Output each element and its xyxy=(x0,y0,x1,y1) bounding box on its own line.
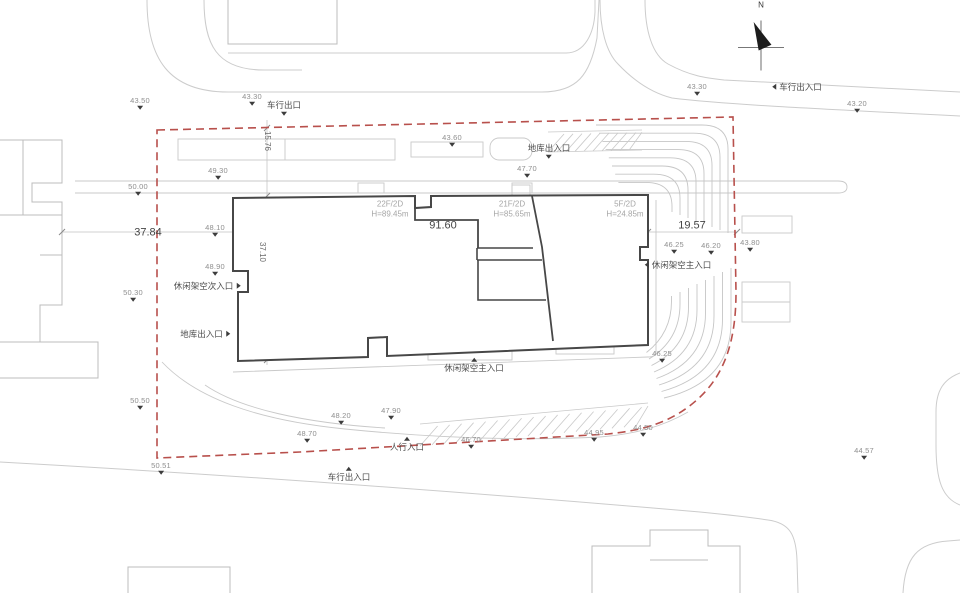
entrance-arrow-icon xyxy=(546,154,552,158)
dimension-label: 19.57 xyxy=(678,221,706,232)
north-label: N xyxy=(758,2,764,10)
building-floors: 5F/2D xyxy=(606,200,643,210)
entrance-arrow-icon xyxy=(645,262,649,268)
entrance-text: 车行出入口 xyxy=(779,83,822,92)
dimension-label: 37.10 xyxy=(258,242,266,262)
entrance-arrow-icon xyxy=(226,331,230,337)
entrance-label: 人行入口 xyxy=(390,437,424,452)
building-floors: 21F/2D xyxy=(493,200,530,210)
site-plan-canvas: N 43.5043.3043.6043.3043.2049.3050.0047.… xyxy=(0,0,960,593)
entrance-text: 车行出口 xyxy=(267,101,301,110)
entrance-text: 人行入口 xyxy=(390,443,424,452)
building-height: H=85.65m xyxy=(493,210,530,220)
dimension-label: 91.60 xyxy=(429,221,457,232)
building-height: H=89.45m xyxy=(371,210,408,220)
entrance-text: 车行出入口 xyxy=(328,473,371,482)
entrance-text: 地库出入口 xyxy=(528,144,571,153)
entrance-arrow-icon xyxy=(281,111,287,115)
entrance-arrow-icon xyxy=(471,358,477,362)
entrance-label: 地库出入口 xyxy=(528,144,571,159)
dimension-label: 37.84 xyxy=(134,228,162,239)
building-height-label: 5F/2DH=24.85m xyxy=(606,200,643,221)
building-height: H=24.85m xyxy=(606,210,643,220)
entrance-text: 休闲架空次入口 xyxy=(174,282,234,291)
entrance-text: 休闲架空主入口 xyxy=(444,364,504,373)
building-height-label: 22F/2DH=89.45m xyxy=(371,200,408,221)
entrance-label: 休闲架空主入口 xyxy=(645,261,712,270)
north-arrow: N xyxy=(735,2,787,75)
entrance-label: 车行出入口 xyxy=(772,83,822,92)
entrance-label: 休闲架空次入口 xyxy=(174,282,241,291)
dimension-label: 15.76 xyxy=(263,131,271,151)
entrance-label: 休闲架空主入口 xyxy=(444,358,504,373)
entrance-text: 休闲架空主入口 xyxy=(652,261,712,270)
north-arrow-icon xyxy=(735,11,787,75)
entrance-arrow-icon xyxy=(404,437,410,441)
building-floors: 22F/2D xyxy=(371,200,408,210)
entrance-label: 车行出口 xyxy=(267,101,301,116)
entrance-arrow-icon xyxy=(772,84,776,90)
entrance-label: 地库出入口 xyxy=(180,330,230,339)
entrance-arrow-icon xyxy=(346,467,352,471)
building-height-label: 21F/2DH=85.65m xyxy=(493,200,530,221)
entrance-label: 车行出入口 xyxy=(328,467,371,482)
entrance-arrow-icon xyxy=(236,283,240,289)
entrance-text: 地库出入口 xyxy=(180,330,223,339)
